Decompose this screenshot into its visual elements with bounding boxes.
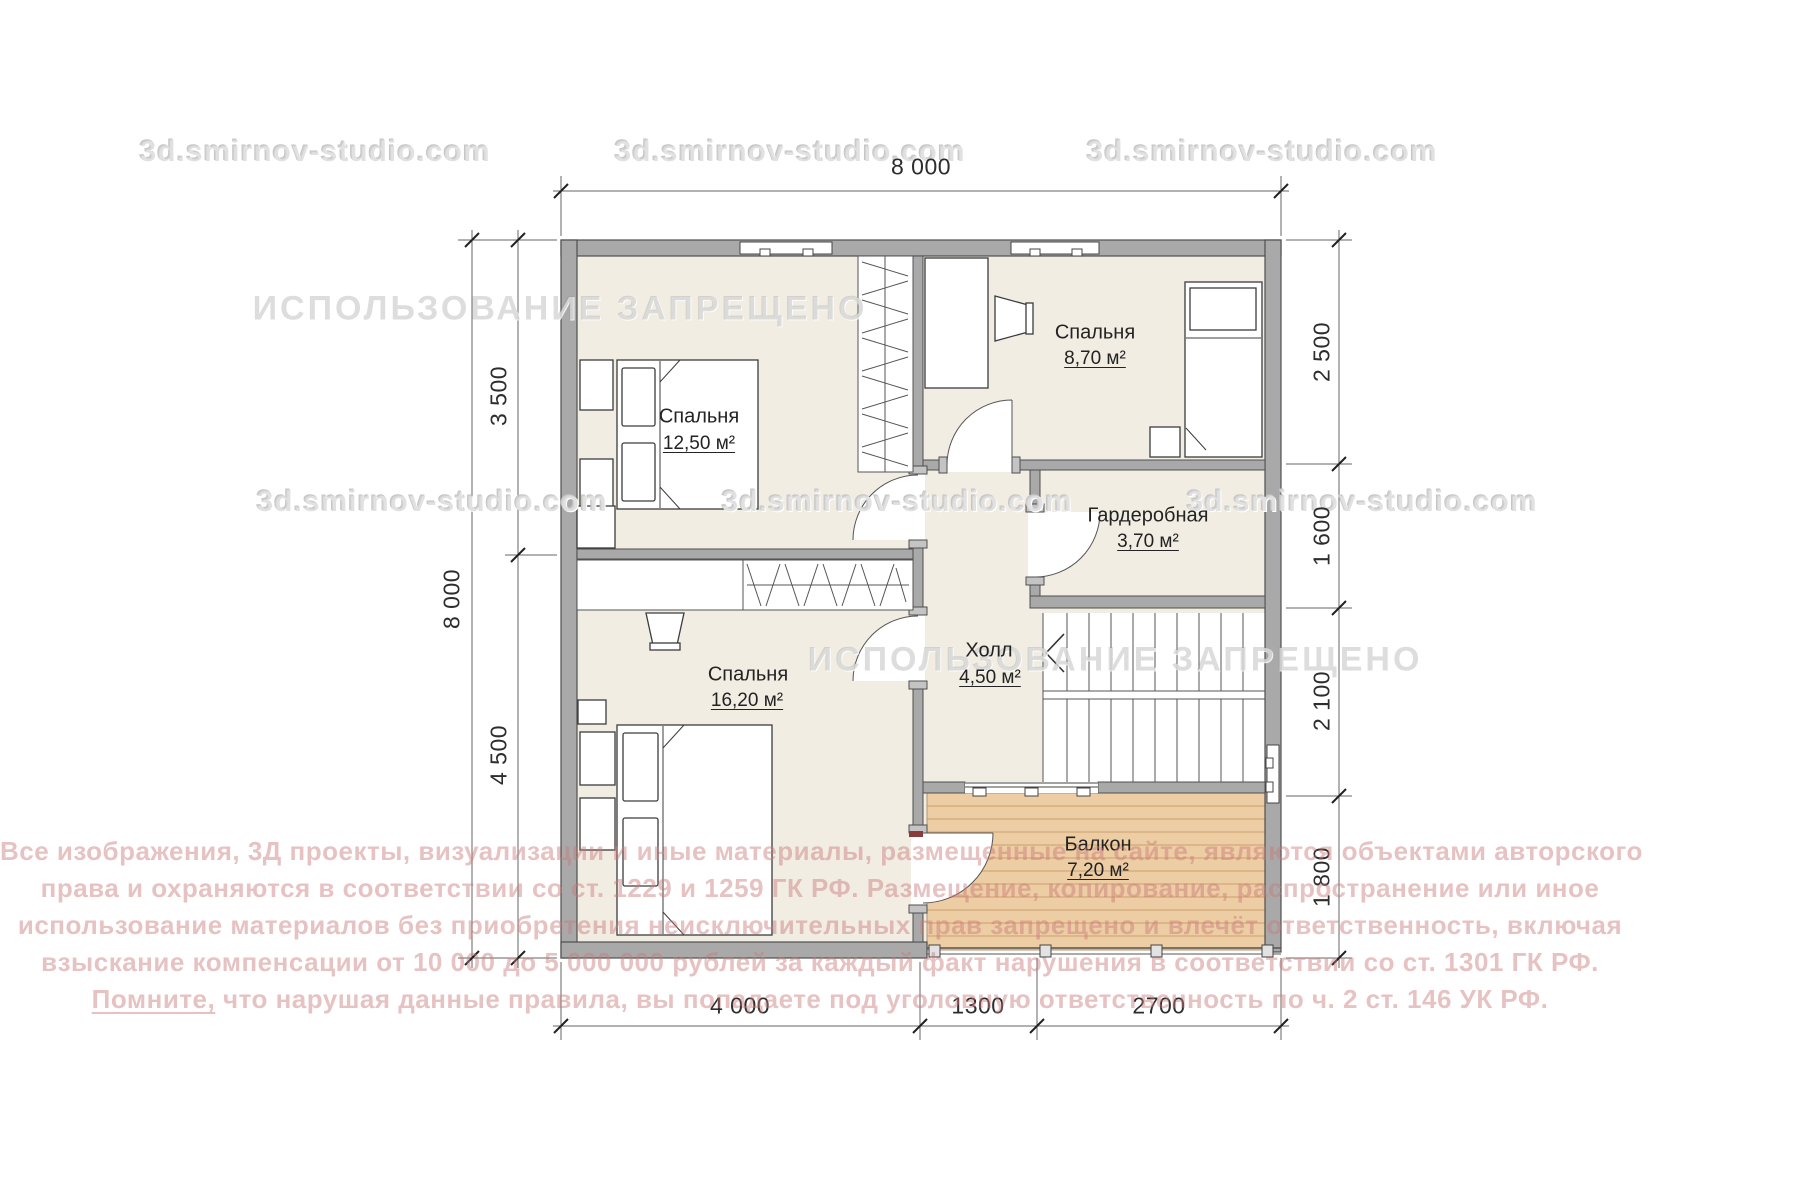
dresser-bedroom-3	[578, 700, 606, 724]
dim-left-8000: 8 000	[439, 569, 466, 629]
balcony-glazing	[965, 782, 1098, 796]
stairs-floor	[1043, 613, 1265, 782]
dim-bottom-1300: 1300	[951, 993, 1004, 1020]
room-name-bedroom-3: Спальня	[708, 664, 788, 687]
dim-right-2500: 2 500	[1309, 322, 1336, 382]
dim-top-8000: 8 000	[891, 154, 951, 181]
window-bedroom-2	[1011, 242, 1099, 254]
room-area-bedroom-3: 16,20 м²	[711, 690, 783, 712]
room-area-bedroom-2: 8,70 м²	[1064, 348, 1126, 370]
desk	[925, 258, 988, 388]
nightstand-bedroom-2	[1150, 427, 1180, 457]
dim-right-2100: 2 100	[1309, 671, 1336, 731]
dim-left-3500: 3 500	[486, 366, 513, 426]
room-area-bedroom-1: 12,50 м²	[663, 433, 735, 455]
dim-left-4500: 4 500	[486, 725, 513, 785]
room-area-balcony: 7,20 м²	[1067, 860, 1129, 882]
room-name-hall: Холл	[965, 640, 1012, 663]
dim-bottom-4000: 4 000	[710, 993, 770, 1020]
chair-bedroom-3	[646, 613, 684, 645]
dim-right-1600: 1 600	[1309, 506, 1336, 566]
dim-right-1800: 1 800	[1309, 847, 1336, 907]
balcony-door-threshold	[909, 831, 923, 837]
window-stairs	[1267, 745, 1279, 803]
floor-plan-page: { "watermarks": { "site_label": "3d.smir…	[0, 0, 1800, 1200]
window-bedroom-1	[740, 242, 832, 254]
wardrobe-hatch-bedroom-1	[858, 256, 913, 472]
room-name-balcony: Балкон	[1064, 834, 1131, 857]
room-name-bedroom-1: Спальня	[659, 406, 739, 429]
wardrobe-hatch-bedroom-3	[577, 560, 913, 610]
room-name-wardrobe: Гардеробная	[1088, 505, 1209, 528]
dim-bottom-2700: 2700	[1132, 993, 1185, 1020]
room-area-wardrobe: 3,70 м²	[1117, 531, 1179, 553]
dresser-bedroom-1	[577, 506, 615, 548]
room-area-hall: 4,50 м²	[959, 667, 1021, 689]
room-name-bedroom-2: Спальня	[1055, 322, 1135, 345]
